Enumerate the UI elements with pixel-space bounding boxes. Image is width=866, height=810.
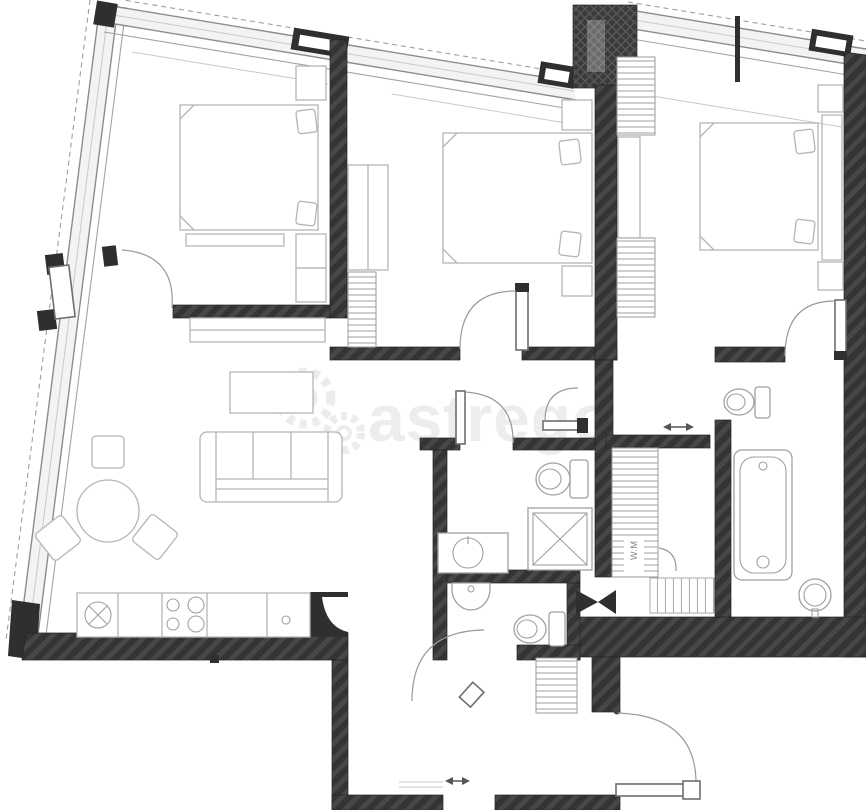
toilet xyxy=(514,612,565,646)
round-sink xyxy=(799,579,831,617)
kitchen xyxy=(77,593,310,637)
wall-right-exterior xyxy=(844,52,866,657)
wall-vestibule-right xyxy=(592,657,620,712)
pillow xyxy=(296,109,318,134)
corner-jamb-top-left xyxy=(93,1,118,28)
laundry-hall: W.M xyxy=(612,448,714,613)
wall-nub xyxy=(210,655,219,663)
bed-bench xyxy=(186,234,284,246)
wall-bedroom2-3 xyxy=(595,85,617,360)
radiator xyxy=(617,57,655,135)
dining-table xyxy=(77,480,139,542)
living-room xyxy=(190,318,342,502)
bedroom-3 xyxy=(617,57,843,317)
bedroom2-door xyxy=(460,283,529,350)
wall-bottom-right xyxy=(578,617,866,657)
pillar-slot xyxy=(587,20,605,72)
bedroom1-door xyxy=(102,245,172,308)
floor-grate xyxy=(650,578,714,613)
window-wall-left xyxy=(18,4,126,651)
vestibule xyxy=(536,658,577,713)
wall-shower-top-left xyxy=(420,438,460,450)
chair xyxy=(131,513,179,561)
slide-arrow-bathroom-hall xyxy=(663,423,694,431)
nightstand xyxy=(818,262,843,290)
nightstand xyxy=(296,66,326,100)
pillow xyxy=(559,231,582,257)
wc xyxy=(452,583,565,646)
wall-small-hall-top xyxy=(606,435,710,448)
bathroom xyxy=(724,387,831,617)
shower-room xyxy=(438,460,592,573)
wall-shower-top-right xyxy=(513,438,595,450)
wash-basin xyxy=(452,583,490,610)
bathtub xyxy=(734,450,792,580)
pillow xyxy=(794,129,816,154)
floor-plan: astrego xyxy=(0,0,866,810)
sofa xyxy=(200,432,342,502)
wall-hall-right xyxy=(595,360,613,577)
washing-machine-label: W.M xyxy=(629,541,639,561)
nightstand xyxy=(818,85,843,112)
wall-bottom-left-segment xyxy=(332,795,443,810)
coffee-table xyxy=(230,372,313,413)
slide-arrow-vestibule xyxy=(399,777,470,787)
wall-bathroom-left xyxy=(715,420,731,617)
bedroom3-door xyxy=(785,300,847,360)
toilet xyxy=(724,387,770,418)
shower xyxy=(528,508,592,570)
wardrobe xyxy=(296,268,326,302)
wc-door xyxy=(412,630,484,707)
nightstand xyxy=(562,266,592,296)
nightstand xyxy=(562,100,592,130)
radiator xyxy=(348,272,376,347)
pillow xyxy=(794,219,816,244)
toilet xyxy=(536,460,588,498)
pillow xyxy=(559,139,582,165)
wall-bedroom1-right xyxy=(330,40,347,318)
entrance-door xyxy=(614,708,701,800)
wall-bedroom2-bottom-left xyxy=(330,347,460,360)
window-mullion xyxy=(735,16,740,82)
side-unit xyxy=(822,115,842,260)
bedroom-1 xyxy=(180,66,326,302)
kitchen-counter xyxy=(77,593,310,637)
shoe-cabinet xyxy=(536,658,577,713)
pillow xyxy=(296,201,318,226)
wall-bedroom3-bottom xyxy=(715,347,785,362)
wall-vestibule-left xyxy=(332,660,348,810)
wall-bedroom1-bottom xyxy=(173,305,330,318)
closet-door-arc xyxy=(659,548,676,571)
radiator xyxy=(617,238,655,317)
threshold-wedge-right xyxy=(598,590,616,614)
wall-bottom-right-segment xyxy=(495,795,620,810)
nightstand xyxy=(296,234,326,268)
threshold-wedge-left xyxy=(576,590,598,614)
chair xyxy=(92,436,124,468)
vanity-sink xyxy=(438,533,508,573)
shelf xyxy=(618,137,640,238)
